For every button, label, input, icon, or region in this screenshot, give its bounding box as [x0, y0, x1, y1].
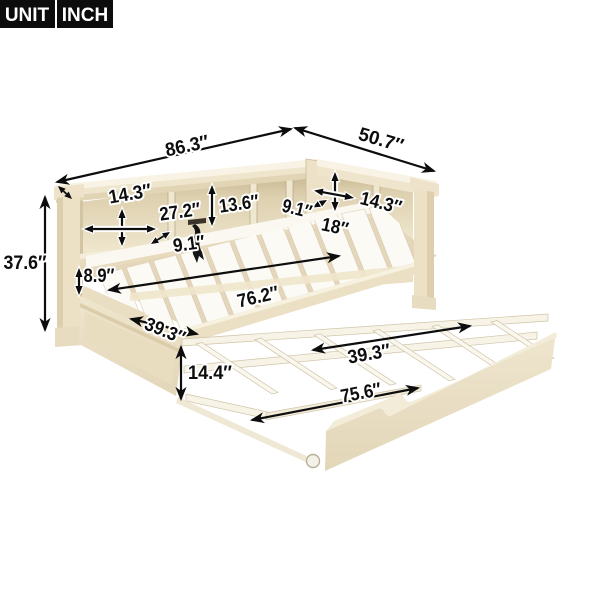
svg-text:14.4″: 14.4″ — [188, 363, 232, 384]
svg-text:9.1″: 9.1″ — [172, 232, 207, 257]
svg-text:UNIT: UNIT — [5, 5, 50, 26]
svg-text:INCH: INCH — [62, 5, 108, 26]
svg-text:37.6″: 37.6″ — [4, 253, 47, 274]
svg-text:8.9″: 8.9″ — [84, 266, 115, 287]
